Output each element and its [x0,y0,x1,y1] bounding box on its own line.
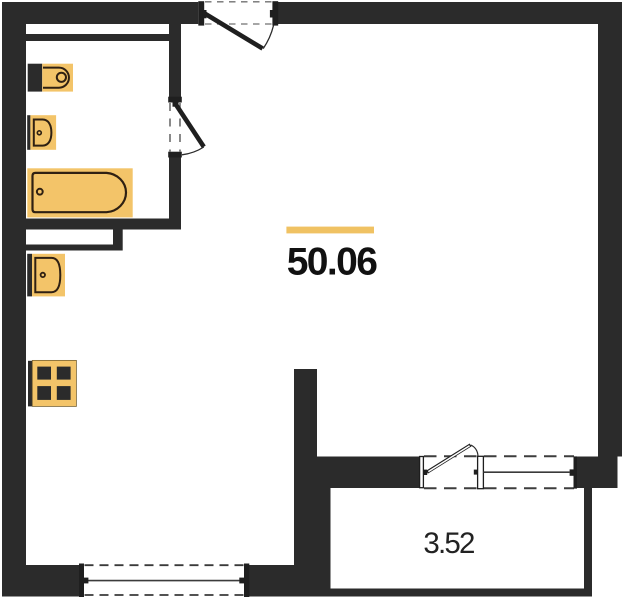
svg-text:50.06: 50.06 [287,241,378,284]
svg-text:3.52: 3.52 [423,527,474,560]
